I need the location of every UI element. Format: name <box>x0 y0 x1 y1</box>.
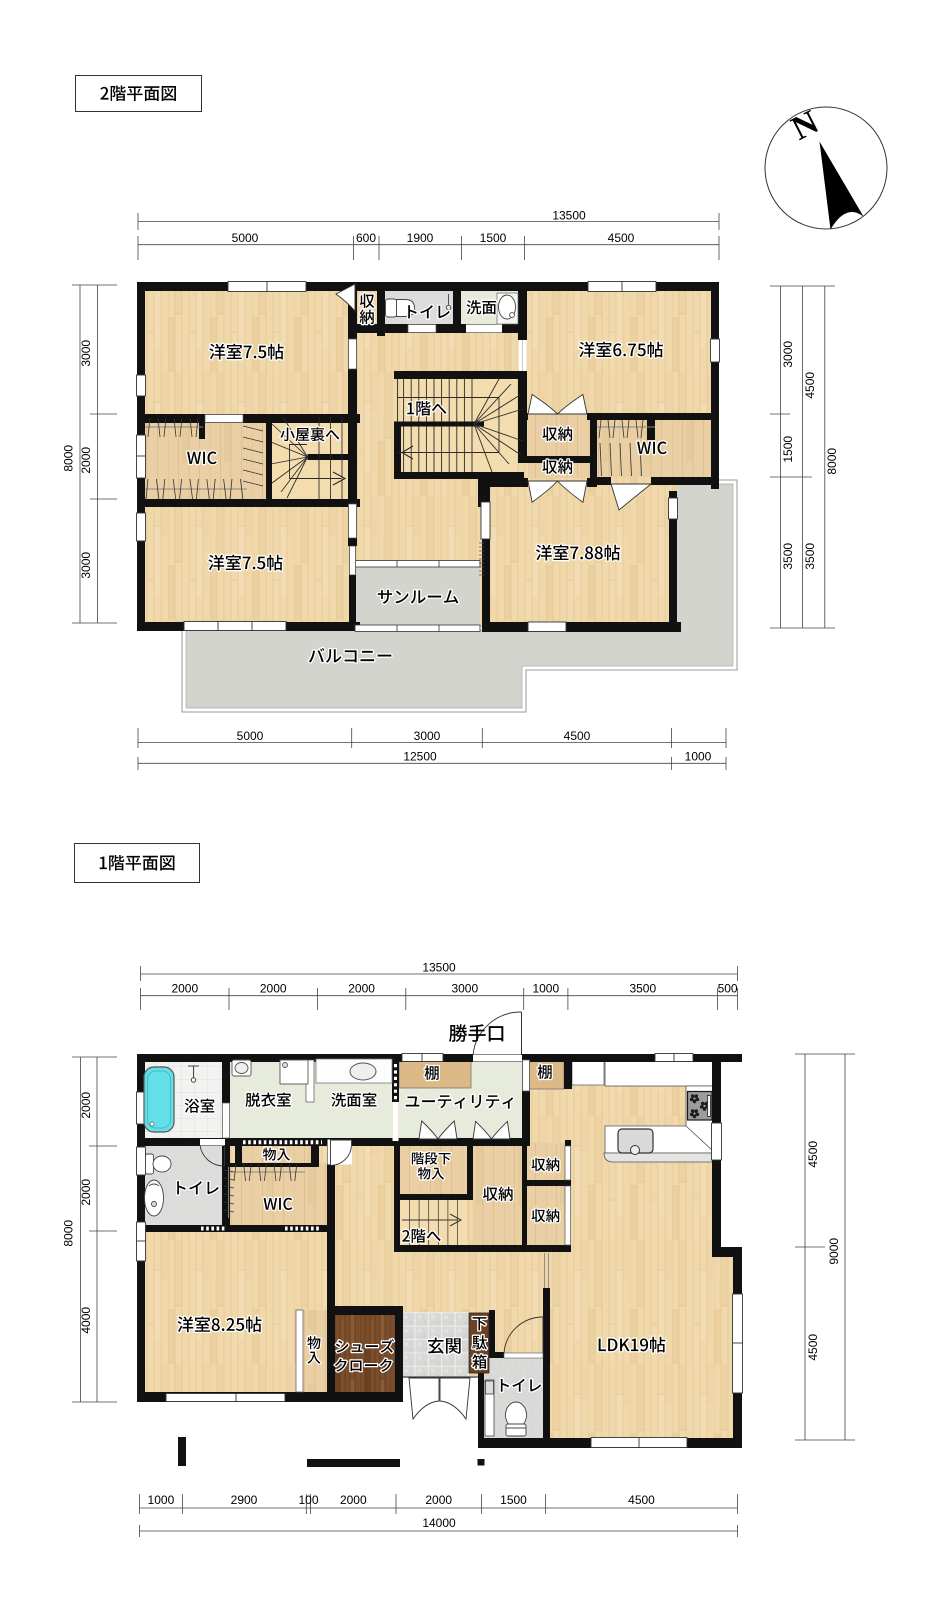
svg-text:1000: 1000 <box>685 750 712 764</box>
svg-text:3000: 3000 <box>451 982 478 996</box>
svg-text:3000: 3000 <box>79 552 93 579</box>
svg-text:2000: 2000 <box>79 447 93 474</box>
svg-text:1500: 1500 <box>500 1493 527 1507</box>
svg-text:2900: 2900 <box>231 1493 258 1507</box>
svg-text:1000: 1000 <box>532 982 559 996</box>
svg-text:3500: 3500 <box>781 543 795 570</box>
svg-text:2000: 2000 <box>79 1179 93 1206</box>
svg-text:1500: 1500 <box>781 436 795 463</box>
svg-text:500: 500 <box>718 982 738 996</box>
svg-text:1500: 1500 <box>480 231 507 245</box>
svg-text:4500: 4500 <box>806 1334 820 1361</box>
svg-text:4500: 4500 <box>608 231 635 245</box>
svg-text:8000: 8000 <box>62 445 76 472</box>
svg-text:13500: 13500 <box>422 961 456 975</box>
svg-text:2000: 2000 <box>260 982 287 996</box>
svg-text:3000: 3000 <box>414 729 441 743</box>
svg-text:3000: 3000 <box>781 341 795 368</box>
svg-text:4000: 4000 <box>79 1307 93 1334</box>
svg-text:2000: 2000 <box>171 982 198 996</box>
svg-text:2000: 2000 <box>340 1493 367 1507</box>
svg-text:3000: 3000 <box>79 340 93 367</box>
svg-text:3500: 3500 <box>803 543 817 570</box>
svg-text:2000: 2000 <box>425 1493 452 1507</box>
svg-text:3500: 3500 <box>629 982 656 996</box>
svg-text:13500: 13500 <box>552 209 586 223</box>
svg-text:1000: 1000 <box>148 1493 175 1507</box>
svg-text:5000: 5000 <box>232 231 259 245</box>
svg-text:12500: 12500 <box>403 750 437 764</box>
svg-text:14000: 14000 <box>422 1516 456 1530</box>
svg-text:4500: 4500 <box>564 729 591 743</box>
svg-text:8000: 8000 <box>825 448 839 475</box>
svg-text:2000: 2000 <box>348 982 375 996</box>
svg-text:600: 600 <box>356 231 376 245</box>
svg-text:4500: 4500 <box>806 1141 820 1168</box>
svg-text:100: 100 <box>298 1493 318 1507</box>
svg-text:9000: 9000 <box>827 1238 841 1265</box>
svg-text:4500: 4500 <box>628 1493 655 1507</box>
svg-text:5000: 5000 <box>237 729 264 743</box>
svg-text:4500: 4500 <box>803 372 817 399</box>
svg-text:2000: 2000 <box>79 1092 93 1119</box>
svg-text:8000: 8000 <box>62 1220 76 1247</box>
svg-text:1900: 1900 <box>407 231 434 245</box>
